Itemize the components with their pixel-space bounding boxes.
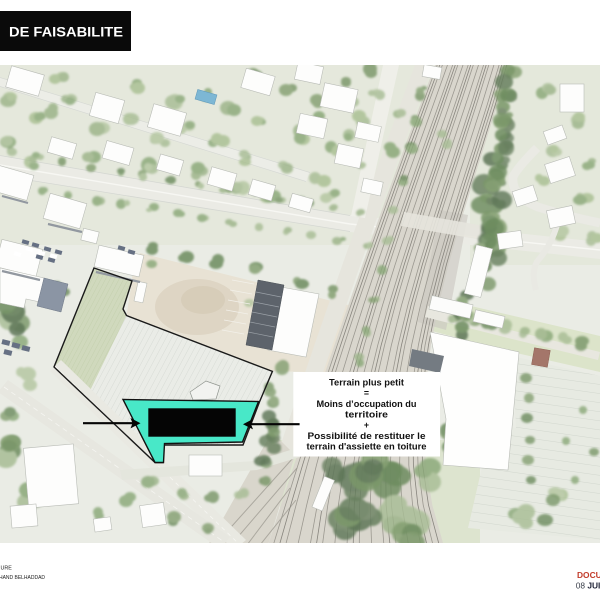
svg-text:HAND BELHADDAD: HAND BELHADDAD bbox=[0, 575, 45, 581]
svg-text:DE FAISABILITE: DE FAISABILITE bbox=[9, 24, 123, 40]
svg-text:Moins d’occupation du: Moins d’occupation du bbox=[317, 399, 417, 409]
svg-text:URE: URE bbox=[1, 566, 13, 572]
svg-text:08 JUILLET: 08 JUILLET bbox=[576, 581, 600, 591]
svg-text:+: + bbox=[364, 420, 369, 430]
svg-text:=: = bbox=[364, 388, 369, 398]
svg-text:Possibilité de restituer le: Possibilité de restituer le bbox=[308, 431, 426, 441]
svg-text:territoire: territoire bbox=[345, 410, 388, 420]
svg-text:terrain d'assiette en toiture: terrain d'assiette en toiture bbox=[307, 442, 427, 452]
svg-text:DOCUMENT: DOCUMENT bbox=[577, 570, 600, 580]
svg-text:Terrain plus petit: Terrain plus petit bbox=[329, 377, 404, 387]
